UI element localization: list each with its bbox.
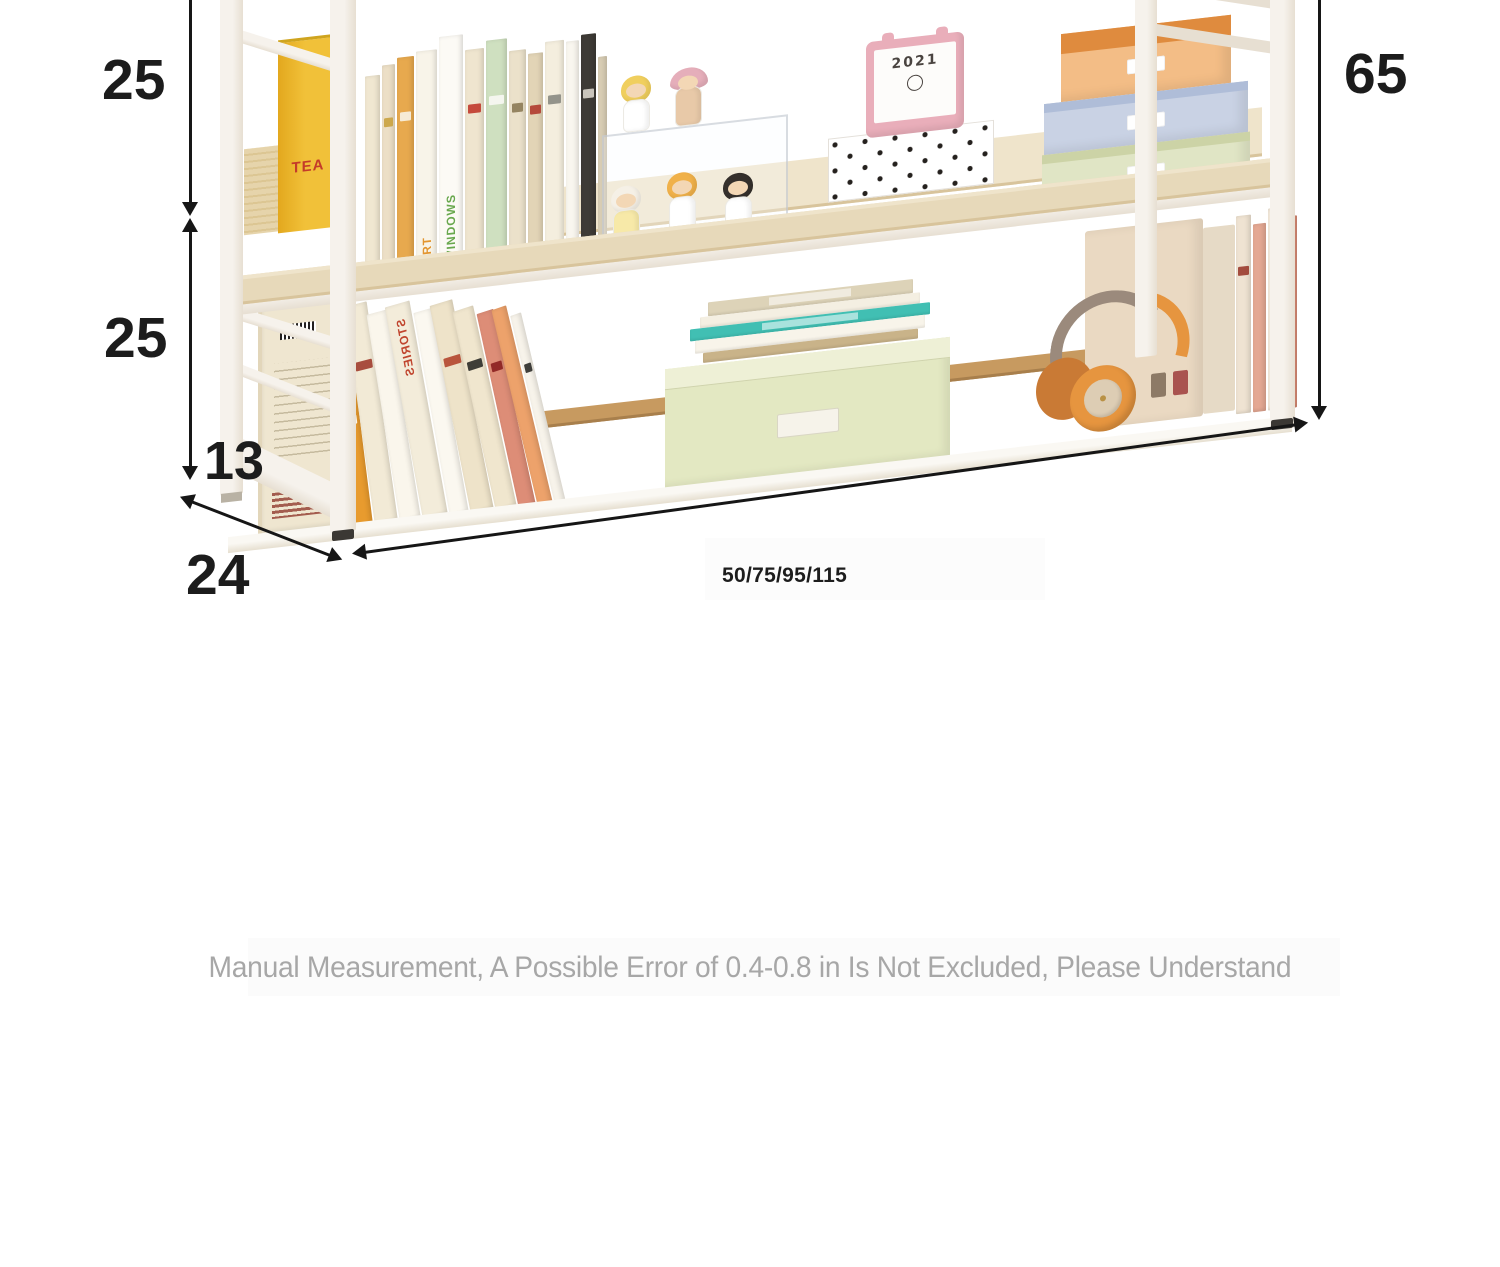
book-spine-mark — [523, 362, 533, 373]
disclaimer-row: Manual Measurement, A Possible Error of … — [0, 951, 1500, 985]
top-shelf-books: ARTWINDOWS — [365, 11, 615, 271]
book-spine-mark — [512, 102, 524, 112]
book-spine-mark — [583, 89, 594, 99]
product-dimension-image: TEA ARTWINDOWS 2021 STORIES — [0, 0, 1500, 1267]
calendar-ring — [882, 32, 894, 48]
paper-stack — [244, 145, 280, 235]
frame-post-left-back — [220, 0, 243, 496]
calendar-year: 2021 — [892, 51, 939, 72]
book-spine — [509, 49, 526, 255]
dimension-arrow-height — [1318, 0, 1321, 408]
book-spine — [1236, 215, 1251, 415]
desk-calendar: 2021 — [866, 31, 964, 138]
dimension-label-depth: 24 — [186, 547, 249, 604]
book-spine-mark — [1238, 266, 1249, 276]
right-side-rail-top — [1156, 0, 1272, 9]
frame-post-left-front — [330, 0, 356, 533]
dimension-label-top-gap: 25 — [102, 52, 165, 109]
file-box-back — [1203, 224, 1235, 414]
calendar-ring — [936, 26, 948, 42]
frame-post-right-back — [1135, 0, 1157, 358]
book-spine — [528, 52, 543, 253]
dimension-arrow-middle-gap — [189, 230, 192, 468]
dimension-label-leg-height: 13 — [204, 434, 264, 488]
book-spine — [382, 64, 395, 269]
dimension-label-middle-gap: 25 — [104, 310, 167, 367]
book-spine-mark — [400, 111, 412, 121]
book-spine — [545, 40, 564, 251]
book-spine — [486, 38, 507, 257]
book-spine-mark — [467, 358, 483, 371]
disclaimer-text: Manual Measurement, A Possible Error of … — [209, 951, 1292, 985]
calendar-doodle — [907, 74, 923, 92]
book-spine-mark — [548, 94, 561, 105]
dimension-arrow-top-gap — [189, 0, 192, 204]
book-spine: ART — [416, 49, 437, 265]
book-spine — [365, 75, 380, 272]
frame-post-right-front — [1270, 0, 1295, 430]
book-spine-mark — [490, 360, 504, 372]
dimension-label-height: 65 — [1344, 46, 1407, 103]
figurine-body — [623, 98, 650, 133]
book-spine-mark — [444, 354, 462, 368]
book-spine-mark — [530, 104, 541, 114]
book-spine-mark — [489, 95, 504, 106]
book-spine — [1253, 223, 1266, 412]
figurine — [670, 66, 706, 128]
book-spine-mark — [355, 359, 372, 372]
frame-foot-left-front — [332, 529, 354, 542]
book-spine — [397, 56, 414, 268]
figurines-on-riser — [618, 46, 706, 134]
figurine-body — [675, 85, 702, 127]
book-spine — [465, 48, 484, 260]
frame-foot-left-back — [221, 491, 242, 502]
book-spine-mark — [468, 103, 481, 114]
book-spine-title: WINDOWS — [444, 51, 458, 263]
book-spine-title: ART — [420, 66, 434, 266]
book-spine-mark — [384, 117, 393, 127]
bottom-shelf-books: STORIES — [356, 271, 606, 527]
book-spine: WINDOWS — [439, 34, 463, 263]
width-options-label: 50/75/95/115 — [722, 564, 847, 588]
yellow-book-title: TEA — [292, 156, 325, 232]
calendar-page: 2021 — [874, 41, 956, 123]
book-spine — [581, 33, 596, 247]
figurine — [618, 74, 654, 134]
green-box-label — [777, 408, 839, 439]
book-spine — [566, 40, 579, 248]
